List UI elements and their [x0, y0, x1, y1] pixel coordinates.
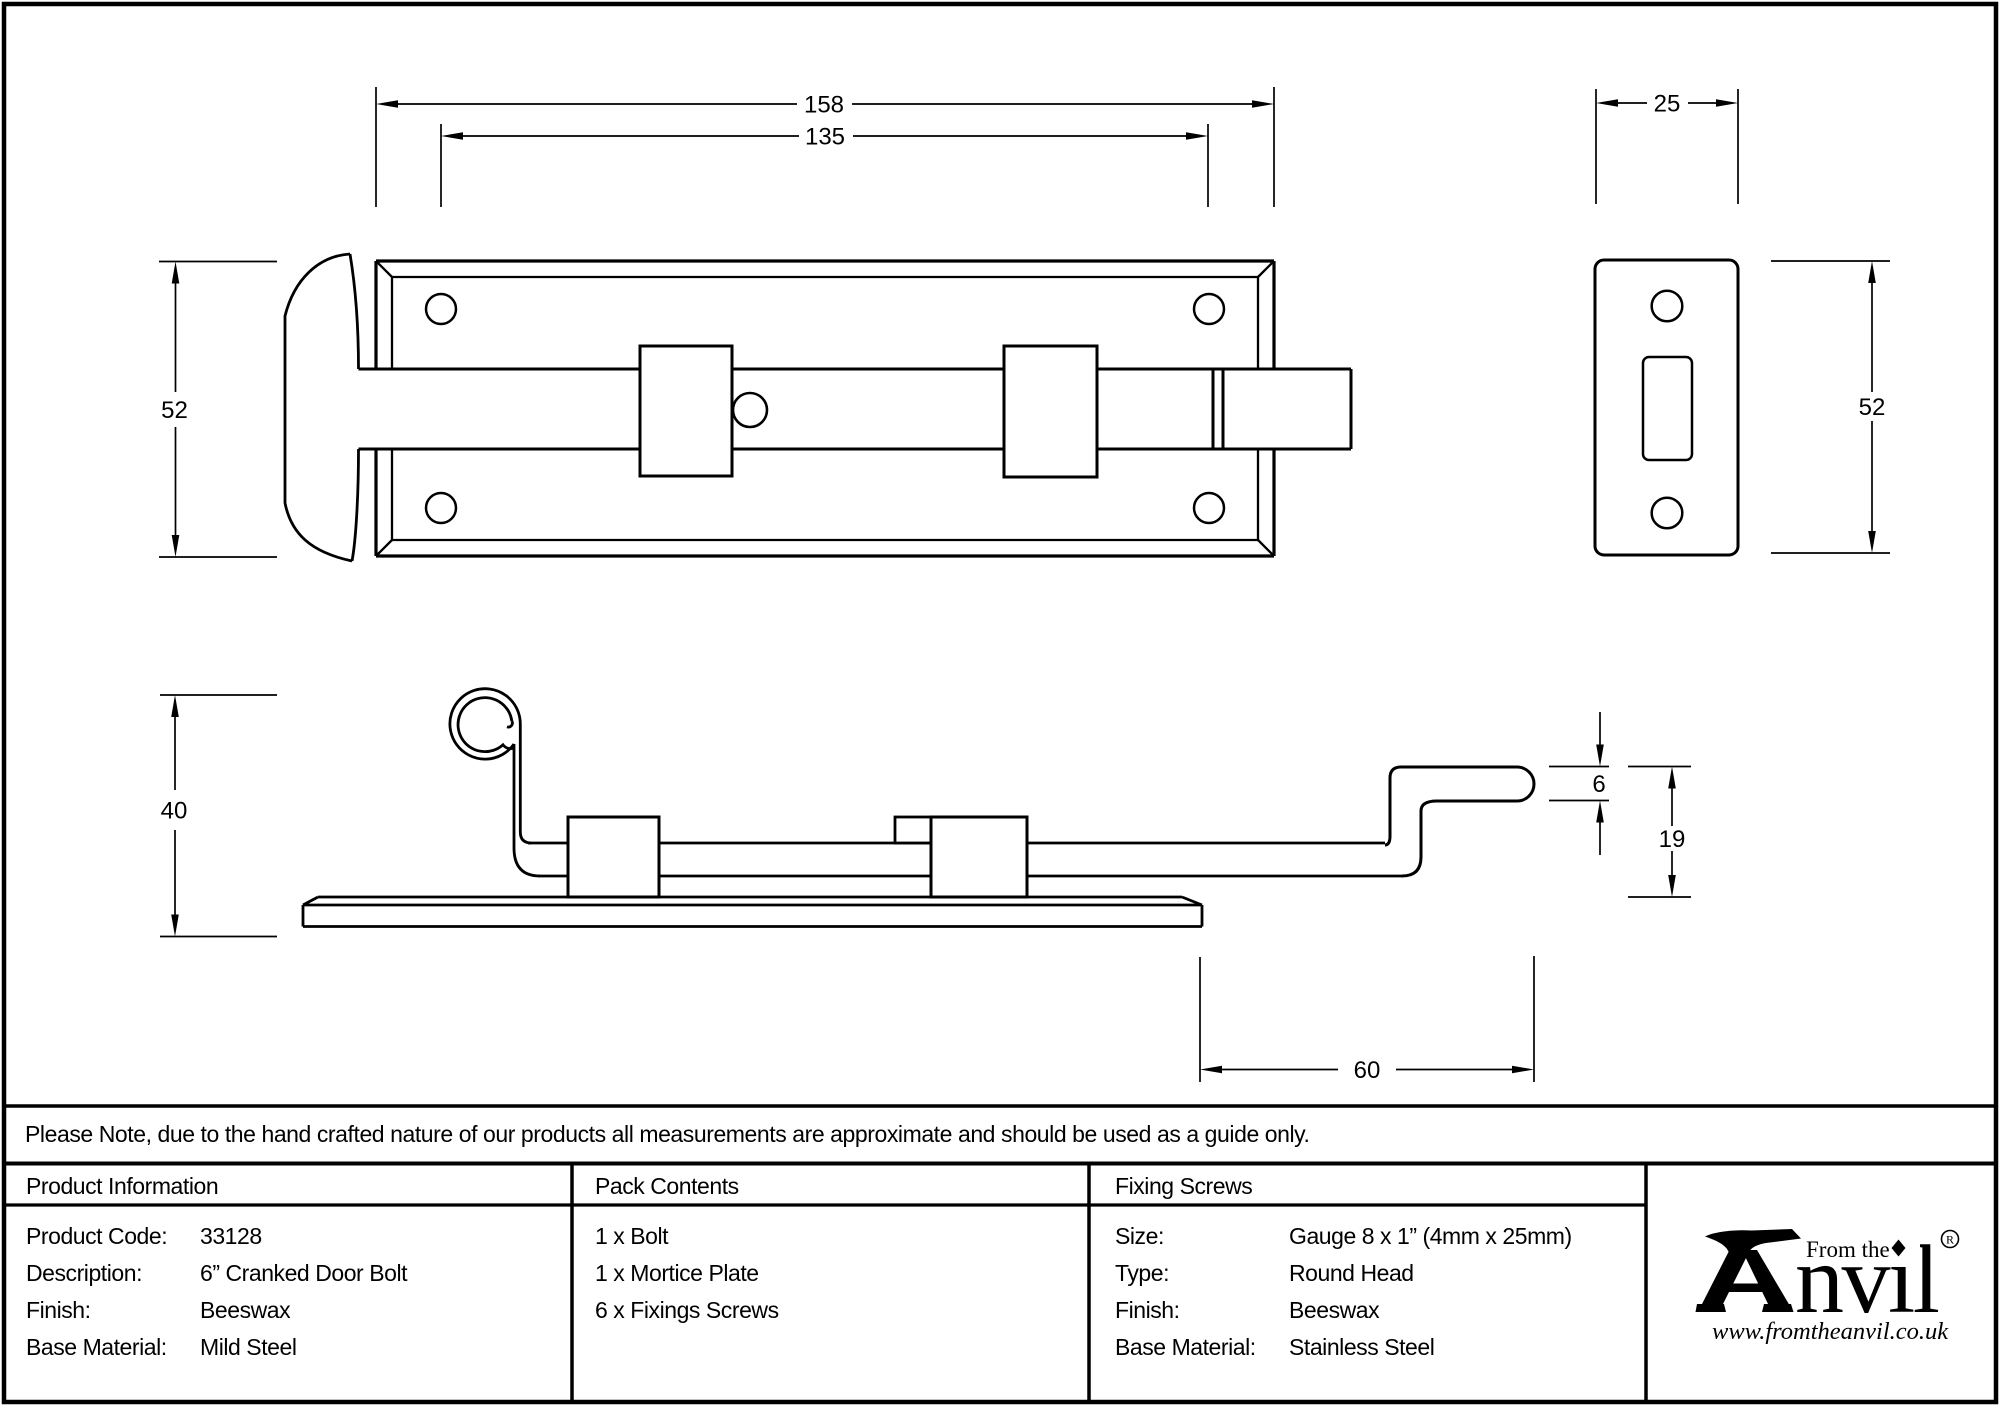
svg-text:www.fromtheanvil.co.uk: www.fromtheanvil.co.uk — [1712, 1318, 1949, 1345]
svg-text:Product Information: Product Information — [26, 1173, 218, 1199]
svg-text:33128: 33128 — [200, 1223, 262, 1249]
svg-text:Size:: Size: — [1115, 1223, 1164, 1249]
svg-text:52: 52 — [1859, 394, 1886, 421]
svg-text:52: 52 — [161, 397, 188, 424]
svg-text:Beeswax: Beeswax — [1289, 1297, 1380, 1323]
svg-text:Type:: Type: — [1115, 1260, 1169, 1286]
svg-text:1 x Mortice Plate: 1 x Mortice Plate — [595, 1260, 759, 1286]
svg-text:40: 40 — [161, 798, 188, 825]
svg-text:Beeswax: Beeswax — [200, 1297, 291, 1323]
svg-text:Finish:: Finish: — [26, 1297, 91, 1323]
svg-text:Mild Steel: Mild Steel — [200, 1334, 297, 1360]
svg-text:1 x Bolt: 1 x Bolt — [595, 1223, 669, 1249]
svg-text:135: 135 — [805, 124, 845, 151]
svg-text:Pack Contents: Pack Contents — [595, 1173, 739, 1199]
svg-text:Base Material:: Base Material: — [1115, 1334, 1256, 1360]
svg-text:Base Material:: Base Material: — [26, 1334, 167, 1360]
svg-text:25: 25 — [1654, 91, 1681, 118]
svg-text:6 x Fixings Screws: 6 x Fixings Screws — [595, 1297, 779, 1323]
svg-text:6” Cranked Door Bolt: 6” Cranked Door Bolt — [200, 1260, 408, 1286]
svg-text:Finish:: Finish: — [1115, 1297, 1180, 1323]
svg-text:6: 6 — [1592, 771, 1605, 798]
svg-text:Gauge 8 x 1” (4mm x 25mm): Gauge 8 x 1” (4mm x 25mm) — [1289, 1223, 1572, 1249]
svg-text:Product Code:: Product Code: — [26, 1223, 167, 1249]
svg-text:Round Head: Round Head — [1289, 1260, 1414, 1286]
svg-text:Stainless Steel: Stainless Steel — [1289, 1334, 1434, 1360]
svg-text:158: 158 — [804, 92, 844, 119]
svg-text:60: 60 — [1354, 1057, 1381, 1084]
svg-text:Please Note, due to the hand c: Please Note, due to the hand crafted nat… — [25, 1121, 1310, 1147]
svg-text:Description:: Description: — [26, 1260, 142, 1286]
svg-text:R: R — [1946, 1233, 1954, 1247]
svg-text:19: 19 — [1659, 826, 1686, 853]
svg-text:Fixing Screws: Fixing Screws — [1115, 1173, 1252, 1199]
